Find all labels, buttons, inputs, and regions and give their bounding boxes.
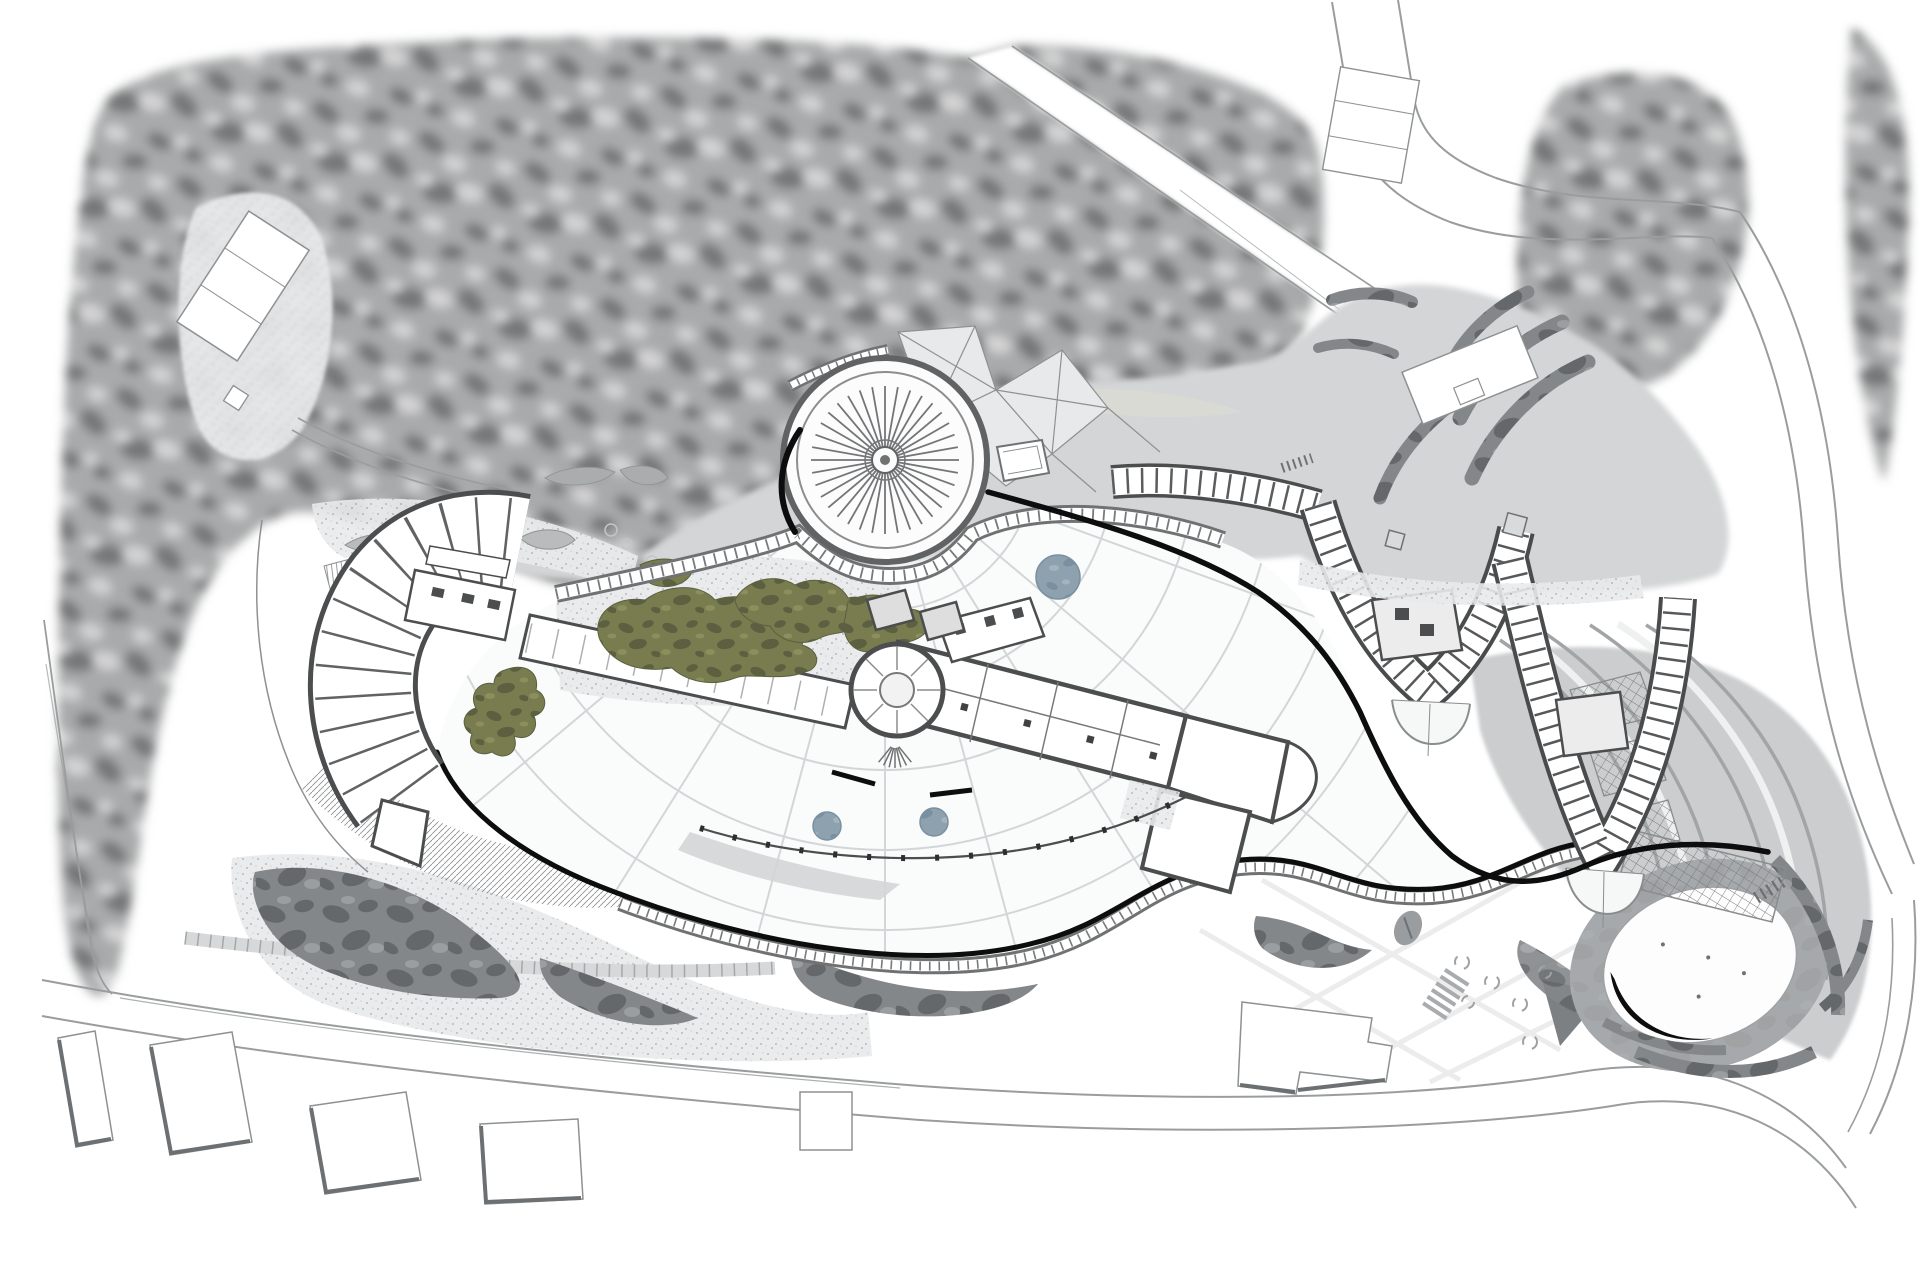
fountain-pool xyxy=(920,808,948,836)
site-plan-canvas xyxy=(0,0,1920,1280)
upper-court xyxy=(1323,67,1420,183)
site-plan xyxy=(0,0,1920,1280)
fountain-pool xyxy=(813,812,841,840)
garden-pavilion xyxy=(997,440,1049,481)
radial-roof-dome xyxy=(782,358,987,562)
planter-box xyxy=(1385,530,1405,550)
fountain-pool xyxy=(1036,555,1080,599)
building-footprint xyxy=(480,1119,583,1204)
building-footprint xyxy=(310,1092,421,1194)
building-footprint-square xyxy=(800,1092,852,1150)
planter-box xyxy=(1503,513,1527,537)
wing-core-block xyxy=(1556,692,1628,756)
